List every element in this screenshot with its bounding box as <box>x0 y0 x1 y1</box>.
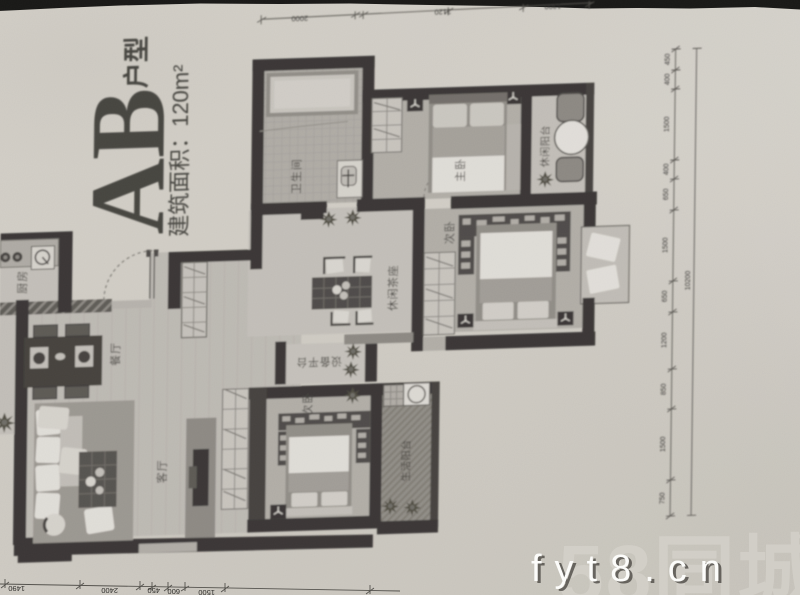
svg-text:450: 450 <box>147 586 160 595</box>
svg-text:600: 600 <box>167 587 180 595</box>
svg-text:1500: 1500 <box>198 588 215 595</box>
svg-text:1490: 1490 <box>8 584 25 593</box>
svg-text:2400: 2400 <box>101 586 118 595</box>
svg-text:fyt8.cn: fyt8.cn <box>531 548 734 590</box>
